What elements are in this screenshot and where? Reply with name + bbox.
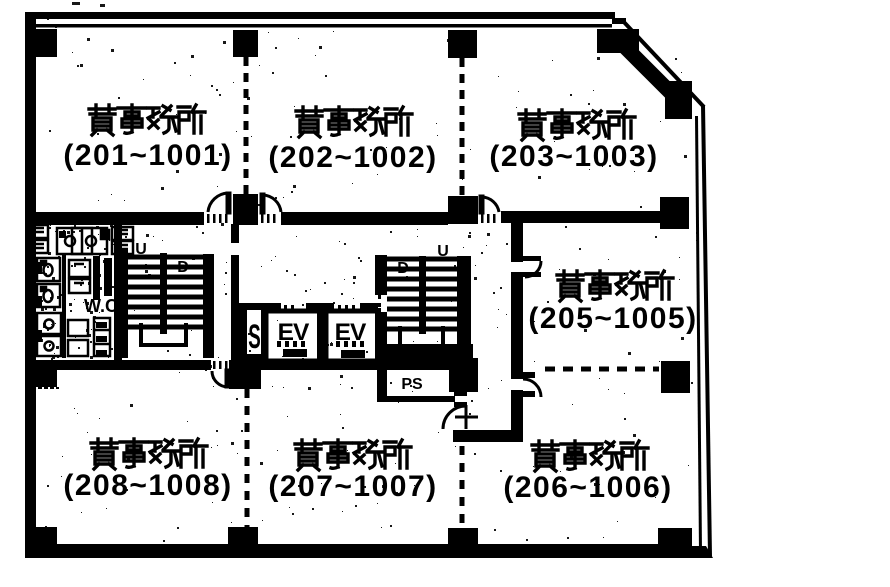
svg-text:(208~1008): (208~1008) — [63, 469, 232, 502]
svg-text:W.C: W.C — [84, 296, 118, 316]
svg-text:(206~1006): (206~1006) — [503, 471, 672, 504]
svg-text:(202~1002): (202~1002) — [268, 141, 437, 174]
svg-text:(201~1001): (201~1001) — [63, 139, 232, 172]
svg-text:D: D — [177, 259, 189, 276]
svg-text:PS: PS — [401, 376, 423, 393]
svg-text:D: D — [397, 260, 409, 277]
svg-text:U: U — [135, 241, 147, 258]
svg-text:S: S — [248, 317, 260, 355]
svg-text:(207~1007): (207~1007) — [268, 470, 437, 503]
svg-text:U: U — [437, 243, 449, 260]
svg-text:(205~1005): (205~1005) — [528, 302, 697, 335]
svg-text:(203~1003): (203~1003) — [489, 140, 658, 173]
